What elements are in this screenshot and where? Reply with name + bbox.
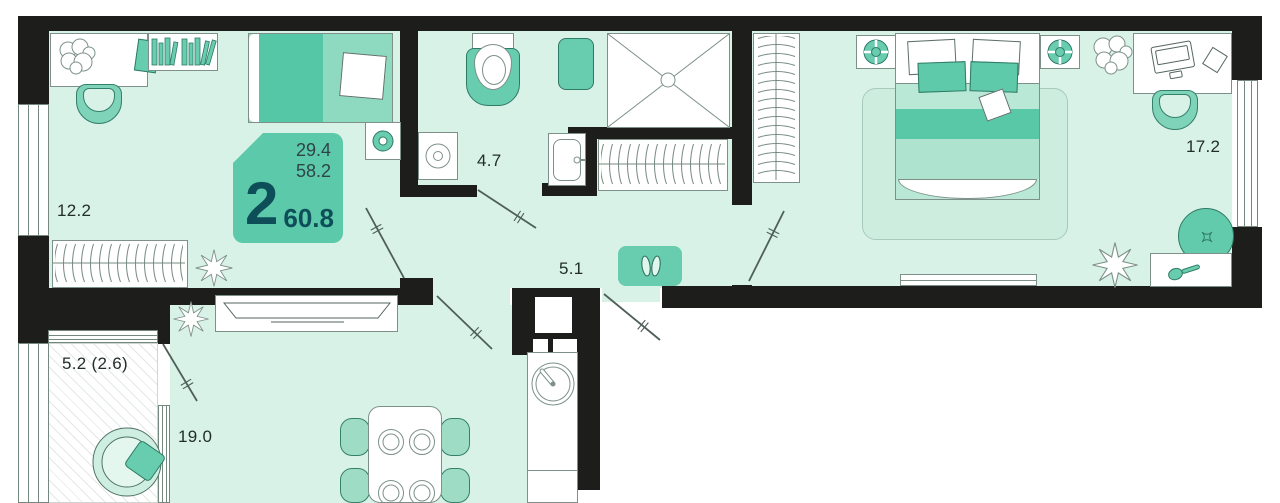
doors-layer [0,0,1280,503]
door-balcony [163,344,197,401]
door-entrance [604,294,660,340]
floor-plan: 29.4 58.2 2 60.8 12.2 4.7 [0,0,1280,503]
door-bathroom [478,190,536,228]
door-bedroom [749,211,784,281]
door-room1 [366,208,404,278]
door-living [437,296,492,349]
